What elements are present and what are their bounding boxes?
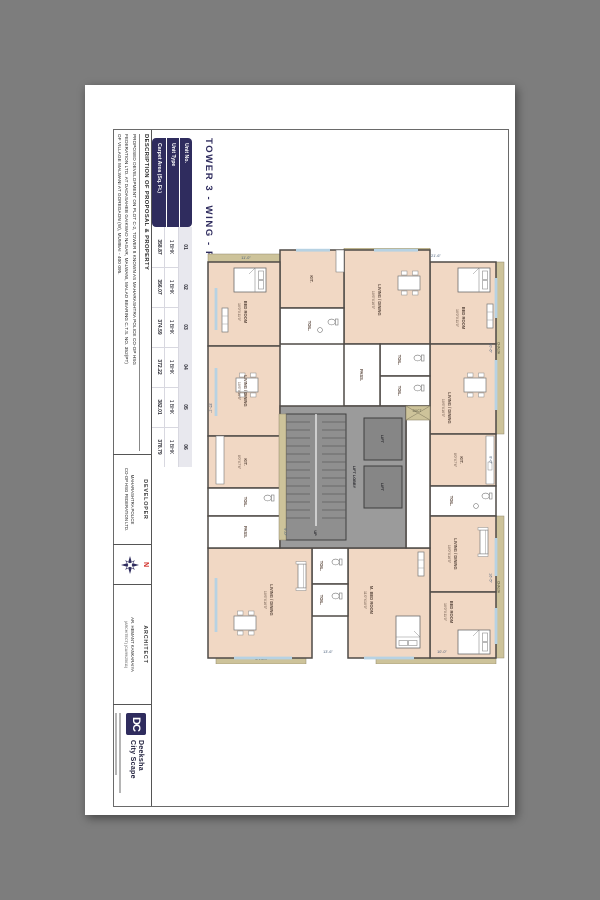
logo-name: Deeksha City Scape (128, 740, 144, 779)
unit-type: 1 BHK (164, 427, 179, 467)
description-text: PROPOSED DEVELOPMENT ON PLOT C-2, TOWER … (115, 134, 138, 452)
header-unit-no: Unit No. (179, 138, 192, 227)
lift-label: LIFT (380, 483, 384, 492)
unit-type: 1 BHK (164, 267, 179, 307)
dim-label: 11'-0" (241, 256, 251, 260)
architect-label: ARCHITECT (142, 585, 148, 704)
dim-label: 10'-0" (437, 650, 447, 654)
description-line: OF VILLAGE MALWANI AT GOREGAON (W), MUMB… (115, 134, 123, 452)
room-dim: 11'0"X10'0" (363, 591, 367, 610)
logo-address-illegible (119, 713, 121, 793)
dim-label: 16'-5" (489, 573, 493, 583)
drawing-title: TOWER 3 - WING - P (203, 138, 214, 259)
unit-type: 1 BHK (164, 227, 179, 267)
unit-type: 1 BHK (164, 387, 179, 427)
developer-name: MAHARASHTRA POLICE CO-OP HSG FEDERATION … (122, 457, 135, 542)
unit-no: 02 (179, 267, 192, 307)
header-unit-type: Unit Type (166, 138, 179, 227)
developer-label: DEVELOPER (142, 455, 148, 544)
description-label: DESCRIPTION OF PROPOSAL & PROPERTY (139, 134, 149, 451)
description-section: DESCRIPTION OF PROPOSAL & PROPERTY PROPO… (113, 130, 151, 455)
dim-label: 10'-6" (489, 343, 493, 353)
room-label: BED ROOM (461, 307, 466, 330)
room-label: LIVING / DINING (243, 375, 248, 406)
room-label: PASS. (243, 526, 248, 538)
unit-column: 01 1 BHK 358.87 (152, 227, 192, 268)
room-dim: 10'6"X16'5" (237, 382, 241, 401)
duct-label: DUCT (413, 409, 422, 413)
unit-area: 372.22 (153, 347, 166, 387)
compass-section: N (113, 545, 151, 585)
room-toilet (430, 486, 496, 516)
drawing-sheet-page: TOWER 3 - WING - P Unit No. Unit Type Ca… (85, 85, 515, 815)
room-label: TOIL. (319, 561, 324, 571)
description-line: PROPOSED DEVELOPMENT ON PLOT C-2, TOWER … (130, 134, 138, 452)
unit-no: 06 (179, 427, 192, 467)
room-label: M. BED ROOM (369, 586, 374, 615)
stair-up-label: UP (313, 530, 317, 536)
room-label: LIVING / DINING (447, 392, 452, 423)
screenshot-root: { "sheet": { "title": "TOWER 3 - WING - … (0, 0, 600, 900)
room-label: TOIL. (319, 595, 324, 605)
chajja-label: CHAJJA (497, 342, 501, 355)
room-label: TOIL. (307, 321, 312, 331)
room-dim: 8'0"X7'6" (237, 455, 241, 470)
room-label: TOIL. (449, 496, 454, 506)
unit-column: 06 1 BHK 378.79 (152, 427, 192, 467)
logo-address-illegible (115, 713, 117, 775)
architect-name: AR. HEMANT KANKARAIYA (ARCHITECT) (CA/99… (122, 587, 135, 702)
unit-table: Unit No. Unit Type Carpet Area (Sq. Ft.)… (152, 138, 192, 468)
room-dim: 8'0"X7'6" (453, 453, 457, 468)
room-label: TOIL. (243, 497, 248, 507)
unit-column: 05 1 BHK 382.01 (152, 387, 192, 428)
room-dim: 10'6"X16'5" (441, 399, 445, 418)
room-label: LIVING / DINING (453, 538, 458, 569)
unit-type: 1 BHK (164, 307, 179, 347)
room-label: TOIL. (397, 386, 402, 396)
room-label: LIVING / DINING (377, 284, 382, 315)
developer-section: DEVELOPER MAHARASHTRA POLICE CO-OP HSG F… (113, 455, 151, 545)
description-line: FEDERATION LTD. AT DADASAHEB GAIKWAD NAG… (123, 134, 131, 452)
unit-no: 05 (179, 387, 192, 427)
sheet-content: TOWER 3 - WING - P Unit No. Unit Type Ca… (114, 130, 508, 806)
room-label: KIT. (243, 458, 248, 465)
room-dim: 10'0"X11'0" (443, 603, 447, 622)
room-dim: 10'0"X11'0" (455, 309, 459, 328)
architect-section: ARCHITECT AR. HEMANT KANKARAIYA (ARCHITE… (113, 585, 151, 705)
unit-area: 378.79 (153, 427, 166, 467)
unit-column: 04 1 BHK 372.22 (152, 347, 192, 388)
room-dim: 10'6"X16'5" (371, 291, 375, 310)
room-toilet (280, 308, 344, 344)
room-label: LIVING / DINING (269, 584, 274, 615)
north-arrow-icon (121, 556, 139, 574)
dim-label: 21'-6" (431, 254, 441, 258)
title-block: DESCRIPTION OF PROPOSAL & PROPERTY PROPO… (113, 130, 152, 806)
unit-area: 374.59 (153, 307, 166, 347)
unit-no: 03 (179, 307, 192, 347)
dim-label: 13'-6" (323, 650, 333, 654)
deeksha-logo: DC Deeksha City Scape (126, 713, 146, 779)
dim-label: 8'-0" (489, 456, 493, 464)
unit-area: 356.07 (153, 267, 166, 307)
north-label: N (142, 545, 149, 584)
unit-type: 1 BHK (164, 347, 179, 387)
room-dim: 10'0"X16'5" (447, 545, 451, 564)
room-label: BED ROOM (243, 301, 248, 324)
unit-table-header-column: Unit No. Unit Type Carpet Area (Sq. Ft.) (152, 138, 192, 227)
dim-label: 35'-1" (209, 403, 213, 413)
room-toilet (312, 548, 348, 584)
room-label: BED ROOM (449, 601, 454, 624)
room-label: TOIL. (397, 355, 402, 365)
room-dim: 10'6"X16'5" (263, 591, 267, 610)
header-carpet-area: Carpet Area (Sq. Ft.) (153, 138, 166, 227)
unit-area: 358.87 (153, 227, 166, 267)
logo-monogram: DC (126, 713, 146, 735)
lift-label: LIFT (380, 435, 384, 444)
room (344, 250, 430, 344)
stair-chajja (279, 414, 286, 540)
room (208, 548, 312, 658)
unit-column: 02 1 BHK 356.07 (152, 267, 192, 308)
room-label: KIT. (309, 275, 314, 282)
room-toilet (312, 584, 348, 616)
unit-no: 01 (179, 227, 192, 267)
unit-column: 03 1 BHK 374.59 (152, 307, 192, 348)
chajja-label: CHAJJA (497, 581, 501, 594)
floor-plan: CHAJJA CHAJJA CHAJJA CHAJJA CHAJJA (206, 248, 506, 664)
logo-section: DC Deeksha City Scape (113, 705, 151, 806)
entry-corridor (406, 406, 430, 548)
room-label: KIT. (459, 456, 464, 463)
room-dim: 10'0"X11'0" (237, 303, 241, 322)
lift-lobby-label: LIFT LOBBY (352, 466, 356, 489)
unit-area: 382.01 (153, 387, 166, 427)
room-label: PASS. (359, 369, 364, 381)
unit-no: 04 (179, 347, 192, 387)
dim-label: 9'-0" (283, 528, 287, 536)
sheet-frame: TOWER 3 - WING - P Unit No. Unit Type Ca… (113, 129, 509, 807)
